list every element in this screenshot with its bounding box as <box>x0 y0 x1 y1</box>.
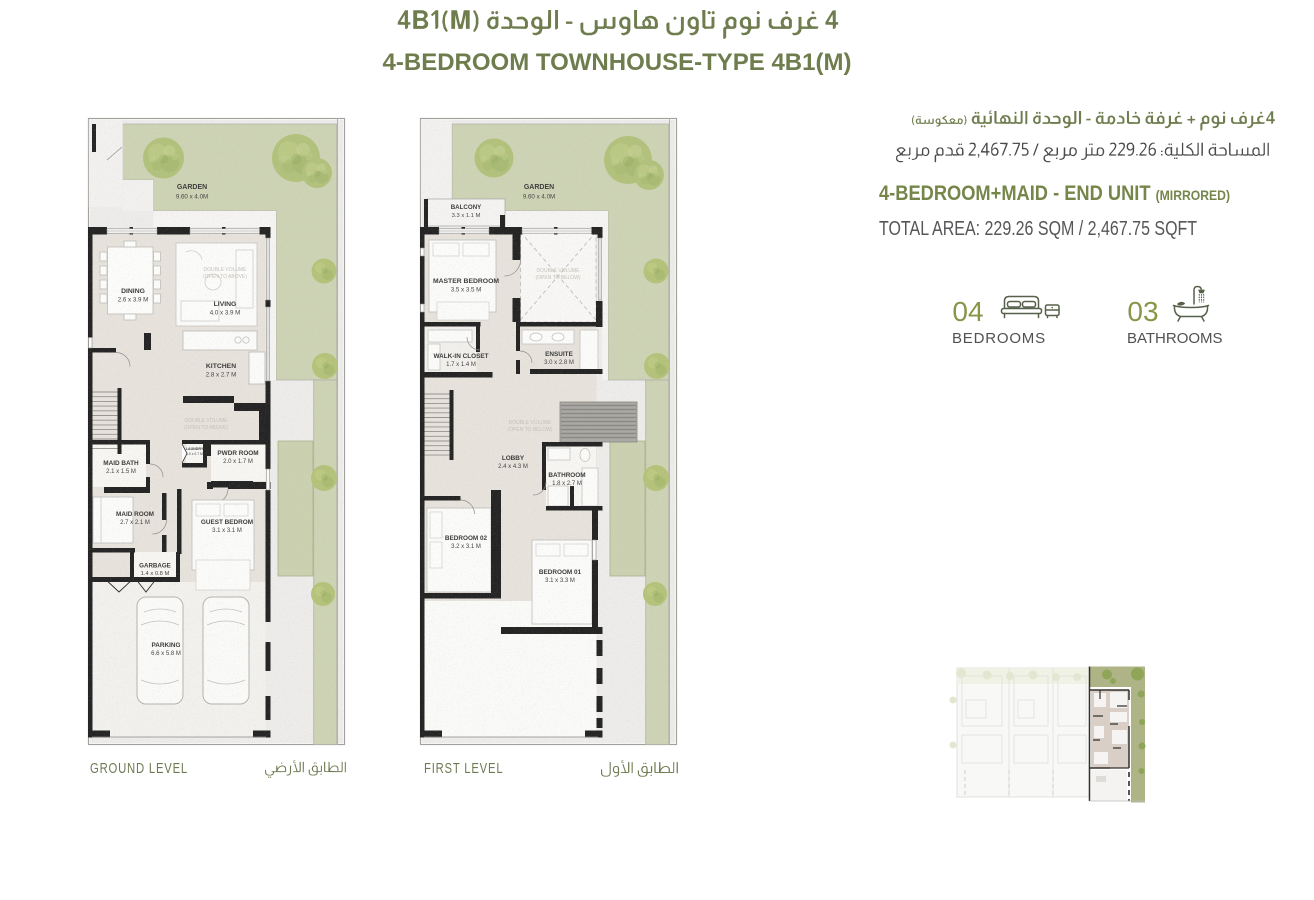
svg-text:1.0 x 0.7 M: 1.0 x 0.7 M <box>186 452 203 456</box>
svg-text:GARDEN: GARDEN <box>524 184 554 191</box>
svg-text:2.8 x 2.7 M: 2.8 x 2.7 M <box>206 372 237 379</box>
svg-text:3.2 x 3.1 M: 3.2 x 3.1 M <box>451 544 481 550</box>
svg-text:2.6 x 3.9 M: 2.6 x 3.9 M <box>118 297 149 304</box>
svg-text:LOBBY: LOBBY <box>502 455 525 462</box>
svg-text:LAUNDRY: LAUNDRY <box>186 447 204 451</box>
svg-text:MAID BATH: MAID BATH <box>103 460 139 467</box>
svg-text:1.7 x 1.4 M: 1.7 x 1.4 M <box>446 362 476 368</box>
svg-text:3.0 x 2.8 M: 3.0 x 2.8 M <box>544 360 574 366</box>
svg-text:BEDROOM 01: BEDROOM 01 <box>539 569 582 576</box>
svg-text:2.1 x 1.5 M: 2.1 x 1.5 M <box>106 469 136 475</box>
svg-text:2.0 x 1.7 M: 2.0 x 1.7 M <box>223 459 253 465</box>
svg-text:9.60 x 4.0M: 9.60 x 4.0M <box>523 194 555 201</box>
svg-text:DOUBLE VOLUME: DOUBLE VOLUME <box>203 267 247 273</box>
svg-text:PWDR ROOM: PWDR ROOM <box>217 450 258 457</box>
svg-text:WALK-IN CLOSET: WALK-IN CLOSET <box>433 353 488 360</box>
svg-text:3.1 x 3.1 M: 3.1 x 3.1 M <box>212 528 242 534</box>
svg-text:(OPEN TO ABOVE): (OPEN TO ABOVE) <box>184 425 228 431</box>
svg-text:2.4 x 4.3 M: 2.4 x 4.3 M <box>498 464 528 470</box>
svg-text:4.0 x 3.9 M: 4.0 x 3.9 M <box>210 310 241 317</box>
svg-text:MASTER BEDROOM: MASTER BEDROOM <box>433 278 499 285</box>
svg-text:3.5 x 3.5 M: 3.5 x 3.5 M <box>451 287 482 294</box>
svg-text:PARKING: PARKING <box>152 642 181 649</box>
svg-text:DOUBLE VOLUME: DOUBLE VOLUME <box>184 418 228 424</box>
svg-text:DOUBLE VOLUME: DOUBLE VOLUME <box>508 420 552 426</box>
svg-text:2.7 x 2.1 M: 2.7 x 2.1 M <box>120 520 150 526</box>
svg-text:(OPEN TO ABOVE): (OPEN TO ABOVE) <box>203 274 247 280</box>
svg-text:MAID ROOM: MAID ROOM <box>116 511 154 518</box>
svg-text:6.6 x 5.8 M: 6.6 x 5.8 M <box>151 651 181 657</box>
svg-text:ENSUITE: ENSUITE <box>545 351 573 358</box>
svg-text:BALCONY: BALCONY <box>451 204 482 211</box>
svg-text:9.60 x 4.0M: 9.60 x 4.0M <box>176 194 208 201</box>
svg-text:DINING: DINING <box>121 288 145 295</box>
svg-text:BATHROOM: BATHROOM <box>548 472 585 479</box>
svg-text:GARDEN: GARDEN <box>177 184 207 191</box>
svg-text:3.1 x 3.3 M: 3.1 x 3.3 M <box>545 578 575 584</box>
svg-text:1.8 x 2.7 M: 1.8 x 2.7 M <box>552 481 582 487</box>
svg-text:KITCHEN: KITCHEN <box>206 363 236 370</box>
svg-text:1.4 x 0.8 M: 1.4 x 0.8 M <box>141 571 170 577</box>
svg-text:BEDROOM 02: BEDROOM 02 <box>445 535 488 542</box>
svg-text:3.3 x 1.1 M: 3.3 x 1.1 M <box>452 213 481 219</box>
svg-text:GARBAGE: GARBAGE <box>139 563 171 570</box>
svg-text:(OPEN TO BELOW): (OPEN TO BELOW) <box>535 275 580 281</box>
svg-text:GUEST BEDROM: GUEST BEDROM <box>201 519 253 526</box>
svg-text:DOUBLE VOLUME: DOUBLE VOLUME <box>536 268 580 274</box>
svg-text:(OPEN TO BELOW): (OPEN TO BELOW) <box>507 427 552 433</box>
svg-text:LIVING: LIVING <box>214 301 237 308</box>
